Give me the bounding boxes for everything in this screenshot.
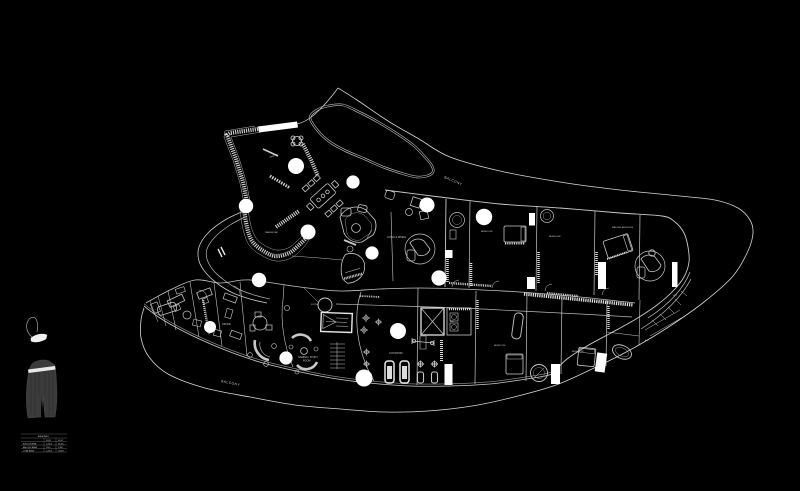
svg-text:15,823: 15,823 (58, 451, 64, 453)
svg-text:ROOM: ROOM (303, 360, 310, 363)
svg-text:1,250.0: 1,250.0 (46, 444, 52, 446)
svg-text:WARDROBE: WARDROBE (265, 231, 278, 234)
svg-text:LIVING & DINING: LIVING & DINING (387, 236, 406, 239)
svg-text:13,455: 13,455 (58, 444, 64, 446)
svg-text:BEDROOM: BEDROOM (549, 236, 560, 238)
svg-text:MASTER BEDROOM: MASTER BEDROOM (612, 226, 633, 229)
svg-text:TOTAL AREA: TOTAL AREA (23, 450, 35, 453)
svg-text:GYM ROOM: GYM ROOM (389, 352, 403, 355)
svg-text:BALCONY AREA: BALCONY AREA (23, 446, 38, 449)
svg-text:BUILT-UP AREA: BUILT-UP AREA (23, 443, 37, 446)
svg-text:2,368: 2,368 (58, 447, 63, 449)
svg-text:A/C: A/C (645, 339, 649, 342)
svg-text:SQ.M: SQ.M (46, 440, 51, 442)
svg-text:BEDROOM: BEDROOM (494, 345, 505, 347)
svg-text:BEDROOM: BEDROOM (481, 231, 492, 233)
svg-text:FOYER: FOYER (311, 304, 319, 306)
svg-text:1,470.0: 1,470.0 (46, 451, 52, 453)
svg-text:W/D: W/D (450, 321, 454, 323)
svg-text:BEDROOM: BEDROOM (572, 351, 583, 353)
svg-text:220.0: 220.0 (46, 447, 51, 449)
svg-text:AREA TABLE: AREA TABLE (38, 435, 50, 438)
svg-text:SQ.FT: SQ.FT (58, 440, 64, 442)
svg-text:OFFICE: OFFICE (222, 323, 231, 326)
